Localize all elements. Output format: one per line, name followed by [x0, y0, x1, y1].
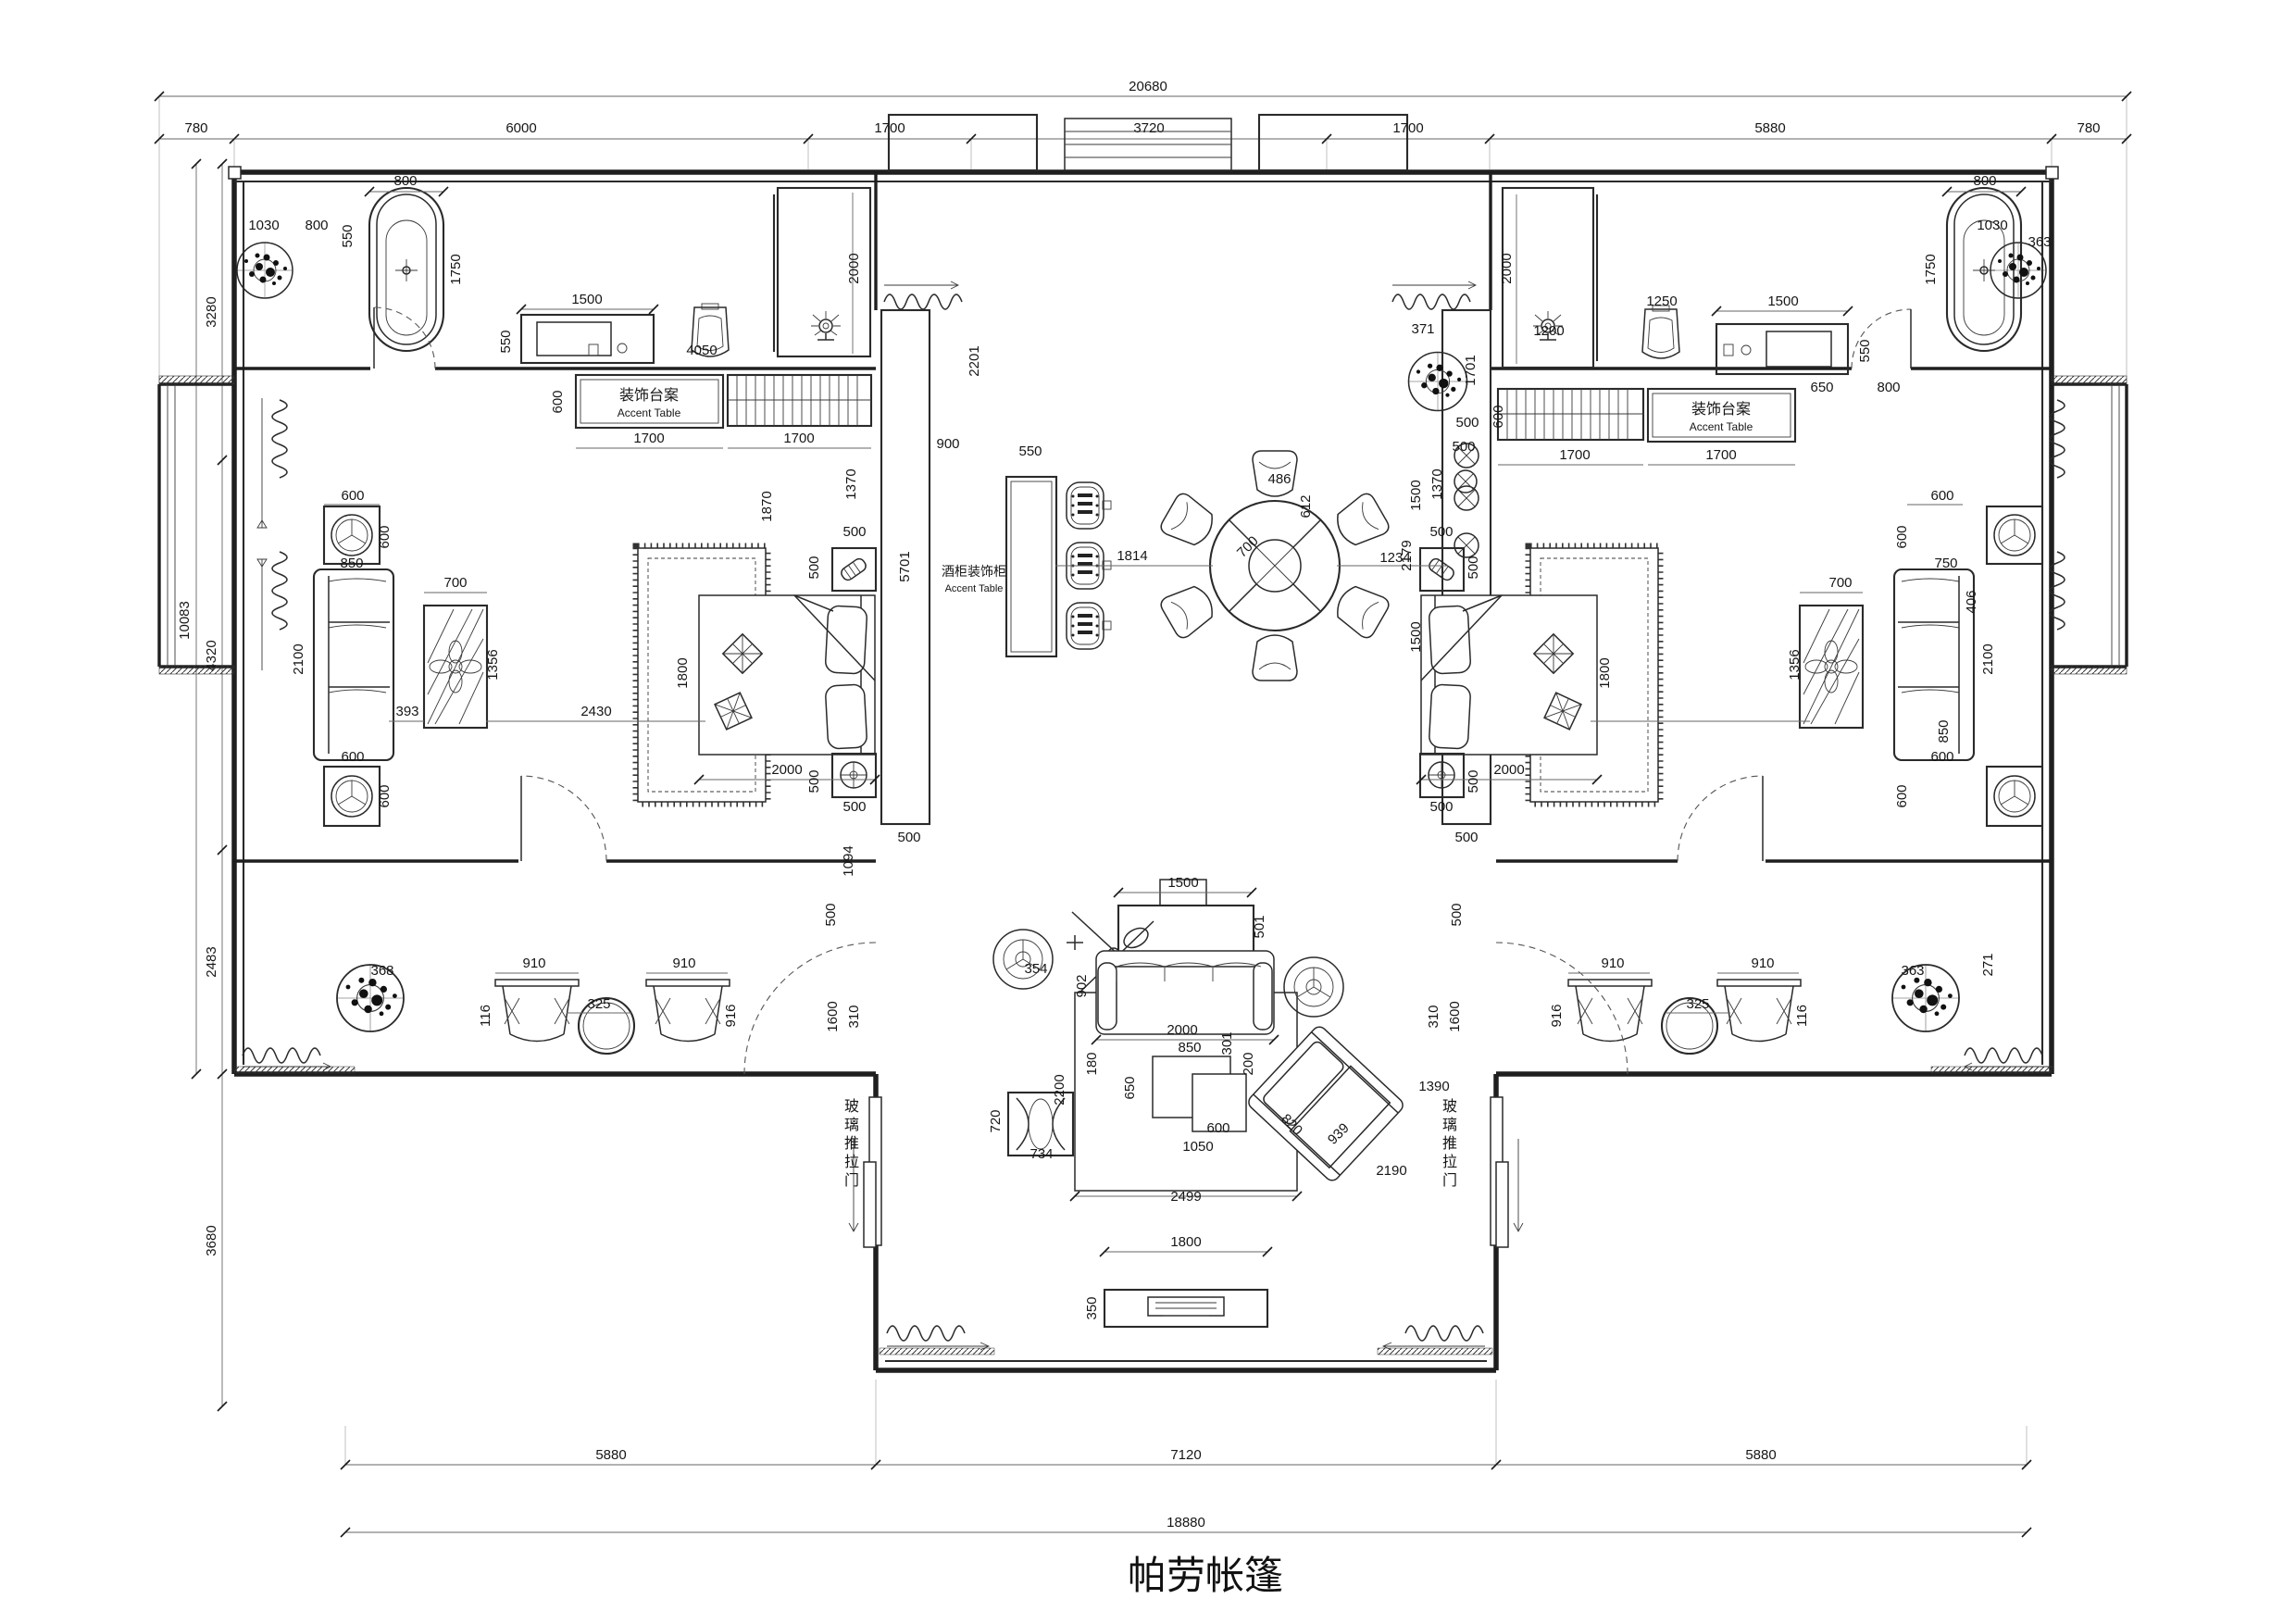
dimension-text: 750 — [1934, 556, 1957, 571]
dimension-text: 500 — [897, 830, 920, 845]
dimension-text: 200 — [1241, 1052, 1256, 1075]
dimension-text: 6000 — [505, 120, 536, 136]
drawing-sheet: 2068078060001700372017005880780100833280… — [0, 0, 2296, 1624]
dimension-text: 2499 — [1170, 1189, 1201, 1205]
dining-chair-icon — [1330, 580, 1391, 641]
dimension-text: 350 — [1084, 1296, 1100, 1319]
dimension-text: 1050 — [1182, 1139, 1213, 1155]
curtain-icon — [884, 281, 962, 309]
bar-console — [1006, 477, 1056, 656]
dimension-text: 1800 — [1170, 1234, 1201, 1250]
ornate-stool-icon — [1067, 482, 1111, 529]
dimension-text: 1250 — [1646, 294, 1677, 309]
dimension-text: 2201 — [967, 345, 982, 376]
interior-walls — [234, 172, 2052, 861]
dimension-text: 600 — [341, 488, 364, 504]
dimension-text: 1700 — [1392, 120, 1423, 136]
dimension-text: 7120 — [1170, 1447, 1201, 1463]
dimension-text: 500 — [1429, 524, 1453, 540]
dimension-text: 1370 — [843, 468, 859, 499]
dimension-text: 1356 — [485, 649, 501, 680]
dimension-text: 500 — [1466, 769, 1481, 793]
dimension-text: 550 — [340, 224, 356, 247]
dimension-text: 2190 — [1376, 1163, 1406, 1179]
sofa-left-bay — [314, 569, 393, 760]
armchair-icon — [1568, 980, 1652, 1042]
dimension-text: 650 — [1810, 380, 1833, 395]
dimension-text: 1030 — [248, 218, 279, 233]
dimension-text: 4320 — [204, 640, 219, 670]
dimension-text: 271 — [1980, 953, 1996, 976]
dimension-text: 501 — [1252, 915, 1267, 938]
dimension-text: 600 — [1930, 488, 1953, 504]
drawing-title: 帕劳帐篷 — [1128, 1555, 1283, 1598]
dimension-text: 1800 — [1597, 657, 1613, 688]
coffee-table-left-bay — [424, 606, 487, 728]
dimension-text: 1500 — [1408, 480, 1424, 510]
dimension-text: 600 — [377, 525, 393, 548]
vanity-right — [1716, 324, 1848, 374]
dimension-text: 2179 — [1399, 540, 1415, 570]
dimension-text: 装饰台案 — [1691, 401, 1751, 418]
dimension-text: 902 — [1074, 974, 1090, 997]
dimension-text: 310 — [846, 1005, 862, 1028]
armchair-icon — [495, 980, 579, 1042]
dimension-text: 780 — [2077, 120, 2100, 136]
dimension-text: 5880 — [1754, 120, 1785, 136]
dimension-text: 酒柜装饰柜 — [942, 564, 1006, 579]
dimension-text: 550 — [1018, 443, 1042, 459]
slatted-cabinet-left — [728, 375, 871, 426]
dimension-text: 910 — [1751, 956, 1774, 971]
dimension-text: Accent Table — [1690, 420, 1753, 433]
dimension-text: 916 — [723, 1004, 739, 1027]
dimension-text: 4050 — [686, 343, 717, 358]
low-console — [1104, 1290, 1267, 1327]
dimension-text: 910 — [522, 956, 545, 971]
dimension-text: Accent Table — [618, 406, 681, 419]
dimension-text: 600 — [1894, 525, 1910, 548]
dimension-text: 玻璃推拉门 — [844, 1098, 859, 1189]
vanity-left — [521, 315, 654, 363]
pillow — [1429, 684, 1471, 749]
console-behind-sofa — [1118, 880, 1254, 954]
dimension-text: 850 — [1936, 719, 1952, 743]
bed-left — [638, 548, 875, 802]
dimension-text: 1370 — [1429, 468, 1445, 499]
dimension-text: 800 — [305, 218, 328, 233]
dimension-text: 406 — [1964, 590, 1979, 613]
dimension-text: 780 — [184, 120, 207, 136]
speaker-icon — [993, 930, 1053, 989]
dimension-text: 3720 — [1133, 120, 1164, 136]
dimension-text: 2000 — [1167, 1022, 1197, 1038]
dimension-text: 1701 — [1463, 355, 1479, 385]
pillow — [825, 606, 867, 674]
dimension-text: 1094 — [841, 845, 856, 876]
plant-icon — [237, 243, 293, 298]
dimension-text: 1390 — [1418, 1079, 1449, 1094]
dimension-text: 装饰台案 — [619, 387, 679, 404]
dimension-text: 720 — [988, 1109, 1004, 1132]
dimension-text: 550 — [498, 330, 514, 353]
pillow — [825, 684, 867, 749]
dining-chair-icon — [1253, 635, 1297, 681]
dimension-text: 1700 — [783, 431, 814, 446]
dimension-text: 850 — [340, 556, 363, 571]
sofa-right-bay — [1894, 569, 1974, 760]
dimension-text: 363 — [2028, 234, 2051, 250]
dimension-text: 2000 — [771, 762, 802, 778]
dimension-text: 2000 — [1499, 253, 1515, 283]
dimension-text: 5880 — [1745, 1447, 1776, 1463]
dimension-text: 5880 — [595, 1447, 626, 1463]
side-table-left-bottom — [324, 767, 380, 826]
dimension-text: 500 — [1454, 830, 1478, 845]
dimension-text: 1700 — [874, 120, 905, 136]
armchair-icon — [646, 980, 730, 1042]
dimension-text: 1750 — [448, 254, 464, 284]
nightstand-left-top — [832, 548, 876, 591]
bathtub-left — [369, 188, 443, 351]
dimension-text: 910 — [1601, 956, 1624, 971]
dimension-text: 734 — [1029, 1146, 1053, 1162]
dimension-text: Accent Table — [945, 583, 1004, 594]
dimension-text: 310 — [1426, 1005, 1441, 1028]
dimension-text: 500 — [1455, 415, 1479, 431]
side-table-right-top — [1987, 506, 2042, 564]
dimension-text: 850 — [1178, 1040, 1201, 1056]
dining-chair-icon — [1330, 491, 1391, 552]
dimension-text: 600 — [1930, 749, 1953, 765]
sliding-door-right — [1491, 1097, 1523, 1247]
dimension-text: 371 — [1411, 321, 1434, 337]
dimension-text: 900 — [936, 436, 959, 452]
dimension-text: 180 — [1084, 1052, 1100, 1075]
dimension-text: 1700 — [1705, 447, 1736, 463]
bathtub-right — [1947, 188, 2021, 351]
wall-light-icon — [1454, 470, 1477, 493]
nightstand-left-bottom — [832, 754, 876, 797]
dimension-text: 3280 — [204, 296, 219, 327]
dimension-text: 2000 — [1493, 762, 1524, 778]
dimension-text: 700 — [1828, 575, 1852, 591]
ornate-stool-icon — [1067, 603, 1111, 649]
plant-icon — [1409, 353, 1467, 411]
dimension-text: 600 — [377, 784, 393, 807]
dimension-text: 2000 — [846, 253, 862, 283]
dimension-text: 1700 — [1559, 447, 1590, 463]
dimension-text: 393 — [395, 704, 418, 719]
dimension-text: 500 — [806, 556, 822, 579]
dining-chair-icon — [1158, 580, 1219, 641]
curtain-icon — [1392, 281, 1476, 309]
dimension-text: 2430 — [580, 704, 611, 719]
dimension-text: 1600 — [1447, 1001, 1463, 1031]
dimension-text: 910 — [672, 956, 695, 971]
bay-window-right — [2050, 376, 2127, 674]
dimension-text: 500 — [1449, 903, 1465, 926]
coffee-table-right-bay — [1800, 606, 1863, 728]
dimension-text: 2100 — [1980, 643, 1996, 674]
dimension-text: 500 — [823, 903, 839, 926]
dimension-text: 500 — [806, 769, 822, 793]
dimension-text: 363 — [1901, 963, 1924, 979]
dimension-text: 700 — [443, 575, 467, 591]
speaker-icon — [1284, 957, 1343, 1017]
dimension-text: 1030 — [1977, 218, 2007, 233]
dimension-text: 1500 — [1167, 875, 1198, 891]
bed-right — [1421, 548, 1658, 802]
slatted-cabinet-right — [1498, 389, 1643, 440]
dimension-text: 玻璃推拉门 — [1442, 1098, 1457, 1189]
curtain-icon — [1931, 1048, 2053, 1073]
dimension-text: 1356 — [1787, 649, 1803, 680]
curtain-icon — [234, 1048, 355, 1073]
floor-plan-svg: 2068078060001700372017005880780100833280… — [0, 0, 2296, 1624]
dimension-text: 1500 — [1767, 294, 1798, 309]
dimension-text: 1870 — [759, 491, 775, 521]
dimension-text: 500 — [842, 524, 866, 540]
curtain-icon — [880, 1326, 1492, 1355]
dimension-chain-left — [192, 159, 227, 1411]
dimension-text: 325 — [1686, 996, 1709, 1012]
armchair-icon — [1717, 980, 1801, 1042]
dimension-text: 500 — [1429, 799, 1453, 815]
dimension-text: 116 — [478, 1005, 493, 1027]
plant-icon — [1990, 243, 2046, 298]
dimension-text: 486 — [1267, 471, 1291, 487]
dining-chair-icon — [1158, 491, 1219, 552]
dimension-text: 3680 — [204, 1225, 219, 1255]
dimension-text: 1700 — [633, 431, 664, 446]
dimension-text: 301 — [1219, 1031, 1235, 1055]
dimension-text: 1500 — [571, 292, 602, 307]
dimension-text: 1500 — [1408, 621, 1424, 652]
dimension-text: 500 — [842, 799, 866, 815]
dimension-text: 600 — [341, 749, 364, 765]
dimension-text: 354 — [1024, 961, 1047, 977]
dimension-text: 1200 — [1533, 323, 1564, 339]
dimension-text: 2200 — [1052, 1074, 1067, 1105]
dimension-text: 600 — [550, 390, 566, 413]
dimension-text: 1750 — [1923, 254, 1939, 284]
dimension-text: 10083 — [177, 601, 193, 640]
dimension-text: 368 — [370, 963, 393, 979]
dimension-text: 20680 — [1129, 79, 1167, 94]
round-niche-icons — [1454, 443, 1479, 557]
dimension-text: 600 — [1491, 405, 1506, 428]
dimension-text: 1814 — [1117, 548, 1147, 564]
toilet-icon — [1642, 306, 1679, 358]
dimension-text: 5701 — [897, 551, 913, 581]
dimension-text: 325 — [587, 996, 610, 1012]
dimension-text: 600 — [1894, 784, 1910, 807]
dining-table — [1210, 501, 1340, 631]
dimension-text: 600 — [1206, 1120, 1229, 1136]
dimension-text: 2483 — [204, 946, 219, 977]
dimension-text: 550 — [1857, 339, 1873, 362]
dimension-text: 2100 — [291, 643, 306, 674]
curtain-icon — [257, 398, 287, 670]
annotation-layer: 2068078060001700372017005880780100833280… — [177, 79, 2101, 1530]
dimension-text: 650 — [1122, 1076, 1138, 1099]
dimension-text: 800 — [1973, 173, 1996, 189]
pillow — [1429, 606, 1471, 674]
dimension-text: 916 — [1549, 1004, 1565, 1027]
dimension-text: 1600 — [825, 1001, 841, 1031]
dimension-text: 800 — [393, 173, 417, 189]
dimension-text: 800 — [1877, 380, 1900, 395]
dimension-text: 116 — [1794, 1005, 1810, 1027]
dimension-text: 500 — [1466, 556, 1481, 579]
dimension-text: 500 — [1452, 439, 1475, 455]
dimension-text: 1800 — [675, 657, 691, 688]
side-table-right-bottom — [1987, 767, 2042, 826]
dimension-text: 18880 — [1167, 1515, 1205, 1530]
dimension-text: 612 — [1298, 494, 1314, 518]
